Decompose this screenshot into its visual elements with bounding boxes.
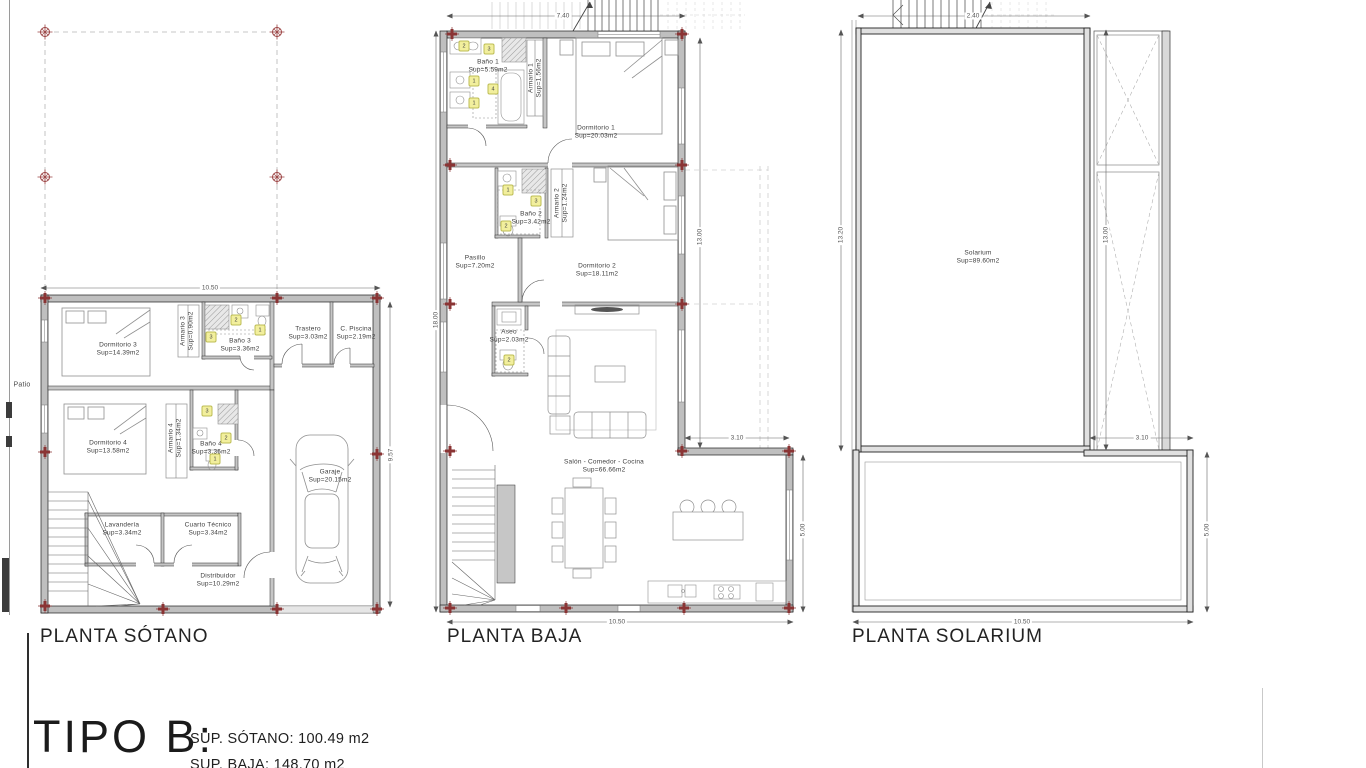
dim-solarium-left: 13.20: [838, 225, 845, 245]
boundary-tick: [6, 402, 12, 418]
boundary-tick: [6, 436, 12, 447]
room-label-dormitorio-2: Dormitorio 2Sup=18.11m2: [576, 263, 618, 280]
fixture-number-badge: 3: [531, 196, 542, 207]
floorplan-linework: [0, 0, 1366, 768]
room-label-armario-1: Armario 1Sup=1.56m2: [528, 58, 545, 97]
room-label-garaje: GarajeSup=20.15m2: [309, 469, 352, 486]
fixture-number-badge: 1: [469, 98, 480, 109]
room-label-bano-2: Baño 2Sup=3.42m2: [511, 211, 550, 228]
fixture-number-badge: 2: [504, 355, 515, 366]
floorplan-sheet: Patio Dormitorio 3Sup=14.39m2 Armario 3S…: [0, 0, 1366, 768]
room-label-salon-comedor-cocina: Salón - Comedor - CocinaSup=66.66m2: [564, 459, 644, 476]
dim-baja-top: 7.40: [555, 13, 572, 20]
dim-baja-left: 18.00: [433, 310, 440, 330]
room-label-cuarto-tecnico: Cuarto TécnicoSup=3.34m2: [185, 522, 232, 539]
fixture-number-badge: 3: [202, 406, 213, 417]
plan-title-baja: PLANTA BAJA: [447, 626, 582, 648]
room-label-armario-4: Armario 4Sup=1.34m2: [168, 418, 185, 457]
site-boundary-line: [9, 0, 10, 615]
fixture-number-badge: 2: [231, 315, 242, 326]
room-label-trastero: TrasteroSup=3.03m2: [288, 326, 327, 343]
dim-solarium-step: 3.10: [1134, 435, 1151, 442]
room-label-dormitorio-4: Dormitorio 4Sup=13.58m2: [87, 440, 130, 457]
room-label-bano-3: Baño 3Sup=3.36m2: [220, 338, 259, 355]
fixture-number-badge: 1: [503, 185, 514, 196]
fixture-number-badge: 1: [255, 325, 266, 336]
room-label-distribuidor: DistribuidorSup=10.29m2: [197, 573, 240, 590]
car-icon: [290, 435, 354, 583]
fixture-number-badge: 1: [469, 76, 480, 87]
fixture-number-badge: 2: [221, 433, 232, 444]
plan-title-solarium: PLANTA SOLARIUM: [852, 626, 1043, 648]
room-label-bano-1: Baño 1Sup=5.59m2: [468, 59, 507, 76]
dim-baja-bottom: 10.50: [607, 619, 627, 626]
dim-baja-right-lower: 5.00: [800, 522, 807, 539]
area-line-sotano: SUP. SÓTANO: 100.49 m2: [190, 731, 369, 747]
fixture-number-badge: 2: [459, 41, 470, 52]
room-label-pasillo: PasilloSup=7.20m2: [455, 255, 494, 272]
model-type-title: TIPO B:: [33, 711, 214, 763]
dim-sotano-height: 9.57: [388, 447, 395, 464]
room-label-lavanderia: LavanderíaSup=3.34m2: [102, 522, 141, 539]
fixture-number-badge: 1: [210, 454, 221, 465]
fixture-number-badge: 4: [488, 84, 499, 95]
room-label-armario-3: Armario 3Sup=0.90m2: [180, 311, 197, 350]
dim-solarium-top: 2.40: [965, 13, 982, 20]
dim-baja-right-upper: 13.00: [697, 227, 704, 247]
room-label-aseo: AseoSup=2.03m2: [489, 329, 528, 346]
room-label-c-piscina: C. PiscinaSup=2.19m2: [336, 326, 375, 343]
room-label-patio: Patio: [14, 380, 31, 389]
room-label-armario-2: Armario 2Sup=1.24m2: [554, 183, 571, 222]
plan-title-sotano: PLANTA SÓTANO: [40, 626, 209, 648]
dim-sotano-width: 10.50: [200, 285, 220, 292]
dim-baja-step: 3.10: [729, 435, 746, 442]
fixture-number-badge: 3: [484, 44, 495, 55]
boundary-tick: [2, 558, 9, 612]
room-label-solarium: SolariumSup=89.60m2: [957, 250, 1000, 267]
fixture-number-badge: 2: [501, 221, 512, 232]
dim-solarium-bottom: 10.50: [1012, 619, 1032, 626]
sheet-edge-line: [1262, 688, 1263, 768]
room-label-dormitorio-3: Dormitorio 3Sup=14.39m2: [97, 342, 140, 359]
area-line-baja: SUP. BAJA: 148.70 m2: [190, 757, 345, 768]
dim-solarium-right-upper: 13.00: [1103, 225, 1110, 245]
fixture-number-badge: 3: [206, 332, 217, 343]
titleblock-rule: [27, 633, 29, 768]
dim-solarium-right-lower: 5.00: [1204, 522, 1211, 539]
plan-solarium-linework: [841, 0, 1207, 622]
room-label-dormitorio-1: Dormitorio 1Sup=20.03m2: [575, 125, 618, 142]
